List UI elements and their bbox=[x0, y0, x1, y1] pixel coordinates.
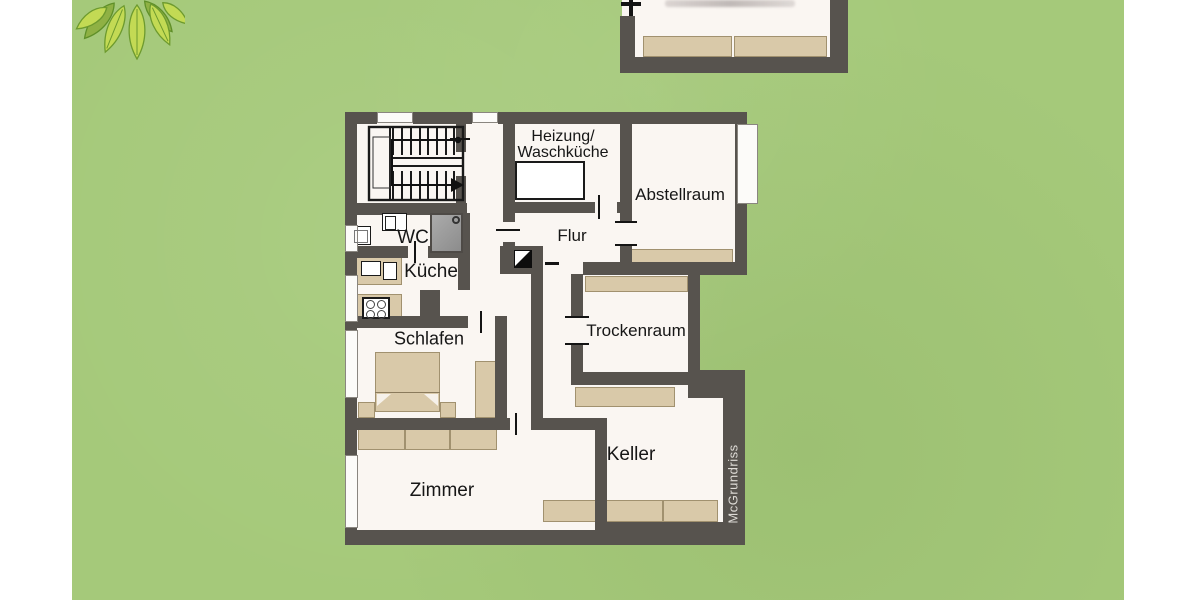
room-label-kueche: Küche bbox=[404, 261, 458, 283]
door-tick bbox=[480, 311, 482, 333]
window bbox=[737, 124, 758, 204]
window bbox=[472, 112, 498, 123]
door-tick bbox=[565, 316, 589, 318]
cabinet-zimmer bbox=[450, 428, 497, 450]
wall bbox=[531, 274, 543, 430]
wall bbox=[595, 522, 745, 545]
watermark-text: McGrundriss bbox=[726, 444, 741, 523]
wall bbox=[571, 372, 700, 385]
door-tick bbox=[615, 244, 637, 246]
wall bbox=[620, 16, 635, 62]
wall bbox=[541, 418, 607, 430]
wall bbox=[620, 57, 848, 73]
toilet-cistern bbox=[385, 216, 396, 230]
burner-icon bbox=[366, 310, 375, 319]
shelf-abstellraum bbox=[628, 249, 733, 263]
kitchen-sink bbox=[361, 261, 381, 276]
wall bbox=[688, 274, 700, 374]
wall bbox=[495, 316, 507, 430]
wall bbox=[345, 418, 510, 430]
wall bbox=[498, 112, 747, 124]
staircase bbox=[362, 124, 466, 204]
wall bbox=[413, 112, 472, 124]
nightstand bbox=[358, 402, 375, 418]
window bbox=[345, 330, 358, 398]
wall-joint-mark bbox=[621, 2, 641, 6]
neighbor-shelf bbox=[734, 36, 827, 57]
room-label-schlafen: Schlafen bbox=[394, 329, 464, 350]
wall bbox=[620, 124, 632, 222]
shelf-keller bbox=[663, 500, 718, 522]
cabinet-zimmer bbox=[405, 428, 450, 450]
wall bbox=[515, 202, 595, 213]
wall bbox=[345, 112, 377, 124]
wall bbox=[830, 0, 848, 58]
window bbox=[345, 275, 358, 322]
room-label-trockenraum: Trockenraum bbox=[586, 321, 686, 341]
room-label-abstellraum: Abstellraum bbox=[635, 185, 725, 205]
neighbor-shelf bbox=[643, 36, 732, 57]
burner-icon bbox=[366, 300, 375, 309]
wall bbox=[571, 274, 583, 318]
room-label-heizung-line2: Waschküche bbox=[518, 144, 609, 162]
bed-headboard-line bbox=[375, 392, 440, 393]
door-tick bbox=[598, 195, 600, 219]
nightstand bbox=[440, 402, 456, 418]
boiler bbox=[515, 161, 585, 200]
cabinet-zimmer bbox=[358, 428, 405, 450]
room-label-keller: Keller bbox=[607, 444, 656, 466]
room-label-zimmer: Zimmer bbox=[410, 480, 474, 502]
wall bbox=[595, 418, 607, 530]
floor-plan-screenshot: Heizung/ Waschküche Abstellraum Flur WC … bbox=[0, 0, 1200, 600]
door-tick bbox=[545, 262, 559, 265]
room-label-wc: WC bbox=[397, 227, 429, 249]
wall bbox=[583, 262, 747, 275]
window bbox=[345, 455, 358, 528]
door-tick bbox=[615, 221, 637, 223]
leaves-decoration bbox=[70, 0, 185, 62]
shelf-keller bbox=[605, 500, 663, 522]
door-tick bbox=[450, 138, 470, 140]
wall bbox=[345, 530, 607, 545]
window bbox=[377, 112, 413, 123]
door-tick bbox=[515, 413, 517, 435]
bed bbox=[375, 352, 440, 412]
chimney-pillar bbox=[420, 290, 440, 317]
door-tick bbox=[496, 229, 520, 231]
illegible-watermark-text bbox=[665, 0, 795, 7]
kitchen-sink-drainer bbox=[383, 262, 397, 280]
shelf-keller-upper bbox=[575, 387, 675, 407]
burner-icon bbox=[377, 310, 386, 319]
shower-head-icon bbox=[452, 216, 460, 224]
room-label-flur: Flur bbox=[557, 226, 586, 246]
door-tick bbox=[565, 343, 589, 345]
washbasin-bowl bbox=[354, 230, 368, 243]
shelf-trockenraum bbox=[585, 276, 688, 292]
wall bbox=[503, 124, 515, 222]
burner-icon bbox=[377, 300, 386, 309]
